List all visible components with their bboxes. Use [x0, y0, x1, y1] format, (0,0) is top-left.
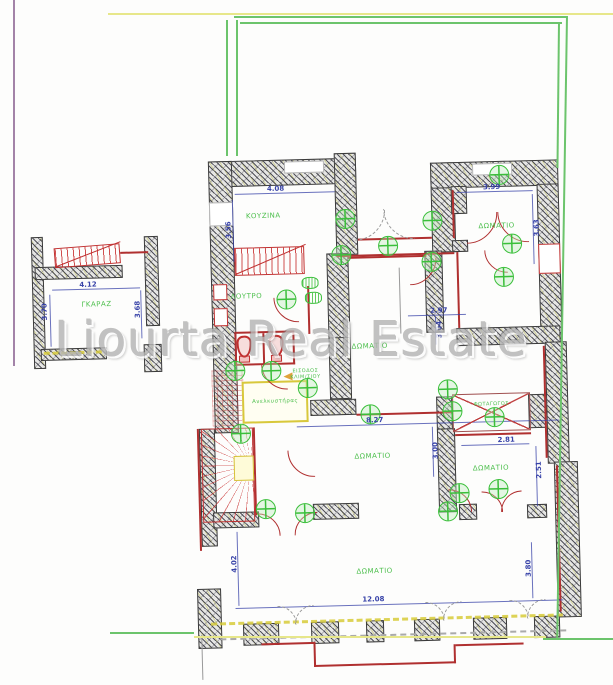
site-boundary-top-inner: [240, 22, 562, 24]
dimension-line: [49, 295, 51, 347]
room-label-stair-entrance: ΕΙΣΟΔΟΣ ΚΛΙΜ/ΣΙΟΥ: [290, 368, 321, 381]
stair-direction-line: [236, 244, 306, 275]
wall-segment: [334, 153, 359, 256]
wall-segment: [310, 399, 356, 416]
dimension-text: 2.51: [535, 461, 543, 478]
site-boundary-bottom-left: [110, 632, 194, 634]
site-boundary-left-inner: [236, 20, 238, 156]
door-swing-arc: [287, 422, 342, 477]
stair-shaft: [234, 455, 255, 481]
dimension-text: 4.12: [79, 281, 96, 289]
pillar: [366, 620, 385, 642]
balcony-outline: [314, 661, 456, 667]
garage-wall: [35, 265, 123, 280]
door-tag-symbol: [305, 292, 322, 304]
dimension-text: 3.70: [40, 303, 48, 320]
balcony-outline: [456, 642, 524, 646]
light-symbol: [502, 233, 523, 254]
dimension-text: 2.81: [497, 436, 514, 444]
drawing-canvas: ΚΟΥΖΙΝΑΔΩΜΑΤΙΟΓΚΑΡΑΖΛΟΥΤΡΟΔΩΜΑΤΙΟΕΙΣΟΔΟΣ…: [0, 0, 613, 675]
room-label-room-mid-bottom: ΔΩΜΑΤΙΟ: [354, 452, 391, 461]
watermark: Liourta Real Estate: [55, 312, 528, 368]
site-boundary-bottom-right: [543, 638, 613, 640]
site-boundary-left-outer: [226, 20, 228, 156]
dimension-line: [461, 443, 529, 446]
balcony-outline: [454, 644, 456, 663]
reference-line-yellow-bottom: [194, 636, 546, 638]
dimension-text: 3.80: [524, 560, 532, 577]
balcony-outline: [313, 642, 316, 667]
partition-line: [455, 432, 531, 436]
dimension-text: 8.27: [366, 416, 383, 424]
stair-direction-line: [56, 241, 121, 267]
dimension-text: 3.63: [532, 219, 540, 236]
staircase-main: [234, 246, 305, 276]
property-line-purple: [13, 0, 15, 366]
dimension-text: 4.02: [230, 555, 238, 572]
room-label-garage: ΓΚΑΡΑΖ: [81, 300, 111, 309]
dimension-text: 3.56: [224, 221, 232, 238]
floor-plan-page: { "watermark": { "text": "Liourta Real E…: [0, 0, 613, 675]
wall-segment: [313, 503, 359, 520]
dimension-text: 4.08: [267, 185, 284, 193]
dimension-text: 12.08: [362, 595, 384, 604]
wall-segment: [545, 341, 570, 464]
reference-line-yellow-top: [108, 13, 613, 15]
room-label-elevator: Ανελκυστήρας: [252, 398, 298, 406]
room-label-room-top-right: ΔΩΜΑΤΙΟ: [478, 221, 515, 230]
window-opening: [284, 161, 324, 174]
light-symbol: [438, 501, 459, 522]
light-symbol: [298, 378, 319, 399]
dimension-line: [235, 191, 335, 195]
pillar: [311, 621, 340, 644]
window-frame: [538, 243, 561, 274]
room-label-bathroom: ΛΟΥΤΡΟ: [230, 292, 262, 301]
light-symbol: [494, 267, 515, 288]
room-label-room-bottom-right: ΔΩΜΑΤΙΟ: [473, 464, 510, 473]
wall-segment: [452, 240, 468, 252]
light-symbol: [256, 499, 277, 520]
door-tag-symbol: [301, 277, 318, 289]
balcony-outline: [261, 642, 315, 645]
site-boundary-top-outer: [234, 16, 566, 18]
room-label-kitchen: ΚΟΥΖΙΝΑ: [246, 211, 281, 220]
window-frame: [213, 284, 227, 300]
room-label-room-bottom: ΔΩΜΑΤΙΟ: [356, 567, 393, 576]
room-label-lightwell: ΦΩΤΑΓΩΓΟΣ: [474, 401, 509, 408]
dimension-text: 3.00: [431, 442, 439, 459]
dimension-text: 3.99: [483, 183, 500, 191]
